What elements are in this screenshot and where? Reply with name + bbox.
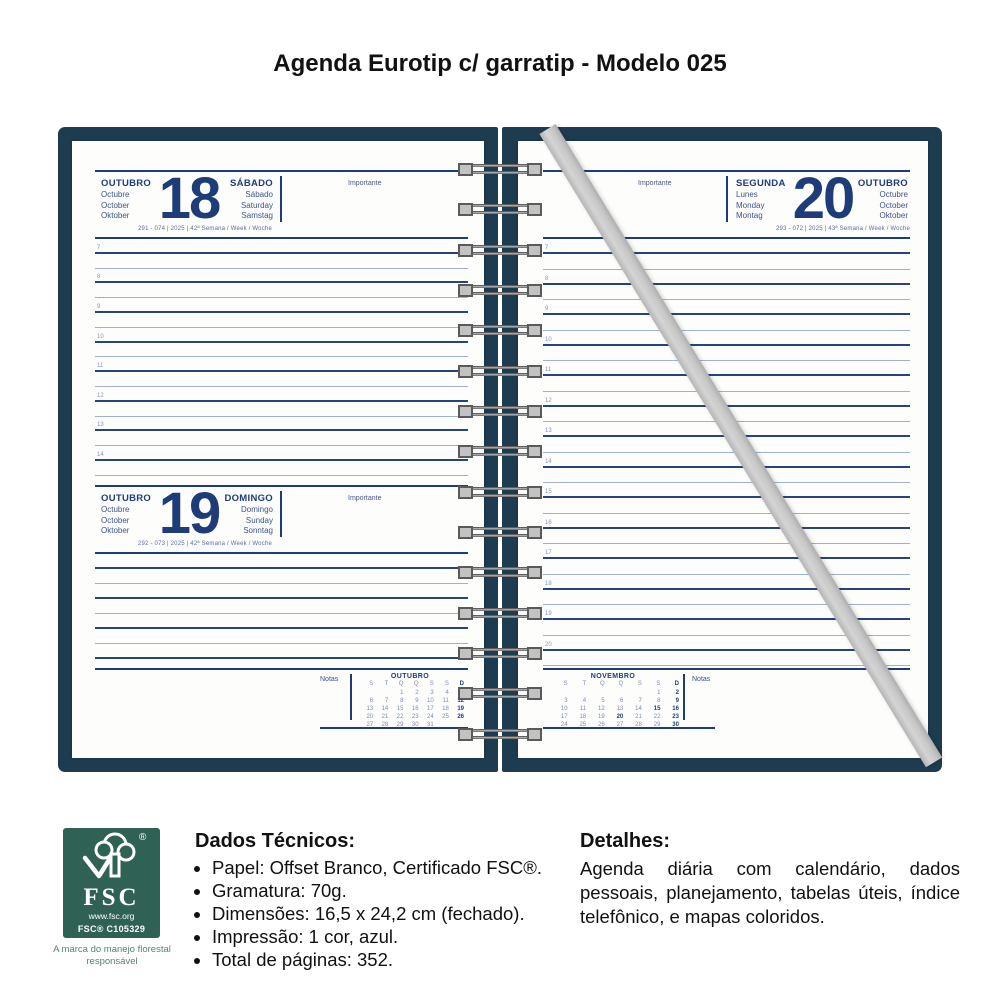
technical-data-section: Dados Técnicos: Papel: Offset Branco, Ce… (195, 830, 575, 972)
fsc-brand: FSC (63, 885, 160, 910)
notes-strip-right: NOVEMBRO STQQSSD 12345678910111213141516… (543, 668, 910, 730)
hour-lines: 7891011121314151617181920 (543, 239, 910, 666)
hour-label: 13 (97, 422, 104, 428)
day-block-18: OUTUBRO Octubre October Oktober 18 SÁBAD… (95, 170, 468, 476)
calendar-day: 15 (388, 706, 403, 714)
calendar-day (373, 690, 388, 698)
calendar-dow: D (660, 681, 679, 689)
notas-label: Notas (685, 670, 715, 727)
fsc-tree-icon: ® (63, 828, 160, 882)
hour-label: 14 (545, 459, 552, 465)
calendar-day: 22 (642, 714, 661, 722)
binding-ring-icon (458, 284, 542, 297)
calendar-dow: Q (388, 681, 403, 689)
hour-label: 19 (545, 611, 552, 617)
calendar-dow-row: STQQSSD (543, 680, 683, 689)
ruled-line (95, 629, 468, 644)
calendar-day: 27 (605, 722, 624, 730)
details-section: Detalhes: Agenda diária com calendário, … (580, 830, 960, 929)
ruled-line (95, 402, 468, 417)
calendar-day: 7 (623, 698, 642, 706)
binding-ring-icon (458, 405, 542, 418)
ruled-line (95, 554, 468, 569)
binding-ring-icon (458, 526, 542, 539)
binding-ring-icon (458, 203, 542, 216)
calendar-day: 25 (568, 722, 587, 730)
calendar-dow-row: STQQSSD (352, 680, 468, 689)
importante-label: Importante (638, 180, 671, 187)
ruled-line: 10 (543, 331, 910, 346)
header-divider (280, 491, 282, 537)
ruled-line (543, 285, 910, 300)
ruled-line: 9 (95, 298, 468, 313)
calendar-day: 26 (586, 722, 605, 730)
calendar-day: 2 (660, 690, 679, 698)
ruled-line: 11 (543, 361, 910, 376)
hour-label: 12 (545, 398, 552, 404)
header-divider (280, 176, 282, 222)
weekday-column: DOMINGO Domingo Sunday Sonntag (213, 493, 273, 537)
binding-ring-icon (458, 163, 542, 176)
ruled-line (95, 343, 468, 358)
ruled-line (95, 461, 468, 476)
hour-label: 8 (97, 274, 100, 280)
calendar-day: 2 (403, 690, 418, 698)
calendar-day: 23 (403, 714, 418, 722)
month-column: OUTUBRO Octubre October Oktober (858, 178, 908, 222)
calendar-day: 18 (434, 706, 449, 714)
hour-label: 16 (545, 520, 552, 526)
day-block-19: OUTUBRO Octubre October Oktober 19 DOMIN… (95, 485, 468, 659)
calendar-day: 4 (434, 690, 449, 698)
calendar-day: 18 (568, 714, 587, 722)
day-number: 20 (783, 172, 863, 225)
calendar-day: 29 (388, 722, 403, 730)
hour-label: 12 (97, 393, 104, 399)
calendar-dow: S (549, 681, 568, 689)
binding-ring-icon (458, 486, 542, 499)
ruled-line: 9 (543, 300, 910, 315)
calendar-day (568, 690, 587, 698)
calendar-day: 25 (434, 714, 449, 722)
binding-ring-icon (458, 324, 542, 337)
calendar-day (358, 690, 373, 698)
hour-label: 9 (545, 306, 548, 312)
binding-ring-icon (458, 445, 542, 458)
calendar-day (605, 690, 624, 698)
ruled-line: 13 (95, 417, 468, 432)
hour-label: 11 (97, 363, 103, 369)
ruled-line (95, 644, 468, 659)
ruled-line (95, 431, 468, 446)
calendar-day: 1 (388, 690, 403, 698)
calendar-day: 21 (373, 714, 388, 722)
calendar-day (434, 722, 449, 730)
binding-ring-icon (458, 365, 542, 378)
ruled-line: 17 (543, 544, 910, 559)
fsc-cert-code: FSC® C105329 (63, 924, 160, 934)
hour-label: 18 (545, 581, 552, 587)
calendar-day: 17 (419, 706, 434, 714)
hour-label: 7 (545, 245, 548, 251)
hour-label: 9 (97, 304, 100, 310)
binding-ring-icon (458, 728, 542, 741)
ruled-line: 16 (543, 514, 910, 529)
calendar-day: 3 (419, 690, 434, 698)
calendar-dow: S (642, 681, 661, 689)
note-lines (95, 554, 468, 659)
calendar-dow: S (419, 681, 434, 689)
fsc-url: www.fsc.org (63, 911, 160, 921)
hour-label: 10 (545, 337, 552, 343)
ruled-line (95, 283, 468, 298)
hour-label: 10 (97, 334, 104, 340)
calendar-dow: S (434, 681, 449, 689)
calendar-day: 9 (660, 698, 679, 706)
calendar-day: 15 (642, 706, 661, 714)
registered-mark: ® (139, 832, 147, 843)
hour-label: 13 (545, 428, 552, 434)
calendar-day: 30 (660, 722, 679, 730)
calendar-dow: Q (586, 681, 605, 689)
ruled-line (95, 254, 468, 269)
calendar-day (586, 690, 605, 698)
calendar-day: 10 (549, 706, 568, 714)
calendar-day: 10 (419, 698, 434, 706)
weekday-column: SÁBADO Sábado Saturday Samstag (213, 178, 273, 222)
calendar-day: 13 (605, 706, 624, 714)
calendar-dow: T (568, 681, 587, 689)
binding-ring-icon (458, 687, 542, 700)
calendar-day: 24 (549, 722, 568, 730)
ruled-line: 8 (543, 270, 910, 285)
calendar-dow: S (358, 681, 373, 689)
ruled-line (543, 315, 910, 330)
weekday-column: SEGUNDA Lunes Monday Montag (736, 178, 786, 222)
calendar-day: 20 (358, 714, 373, 722)
hour-lines: 7891011121314 (95, 239, 468, 476)
technical-data-item: Total de páginas: 352. (212, 949, 575, 972)
calendar-day: 17 (549, 714, 568, 722)
calendar-day (549, 690, 568, 698)
calendar-day (623, 690, 642, 698)
month-column: OUTUBRO Octubre October Oktober (101, 178, 151, 222)
ruled-line (543, 590, 910, 605)
calendar-day: 7 (373, 698, 388, 706)
calendar-day: 3 (549, 698, 568, 706)
details-heading: Detalhes: (580, 830, 960, 853)
technical-data-heading: Dados Técnicos: (195, 830, 575, 853)
hour-label: 15 (545, 489, 552, 495)
ruled-line: 15 (543, 483, 910, 498)
notes-strip-left: Notas OUTUBRO STQQSSD 123456789101112131… (95, 668, 468, 730)
calendar-dow: T (373, 681, 388, 689)
ruled-line (95, 372, 468, 387)
agenda-page-left: OUTUBRO Octubre October Oktober 18 SÁBAD… (72, 141, 484, 758)
agenda-mockup: OUTUBRO Octubre October Oktober 18 SÁBAD… (58, 127, 942, 772)
binding-ring-icon (458, 566, 542, 579)
hour-label: 17 (545, 550, 552, 556)
month-column: OUTUBRO Octubre October Oktober (101, 493, 151, 537)
calendar-day: 6 (358, 698, 373, 706)
mini-calendar-october: OUTUBRO STQQSSD 123456789101112131415161… (352, 670, 468, 727)
calendar-day: 1 (642, 690, 661, 698)
ruled-line (95, 584, 468, 599)
notas-label: Notas (320, 670, 350, 727)
fsc-caption: A marca do manejo florestal responsável (50, 944, 174, 968)
product-image: Agenda Eurotip c/ garratip - Modelo 025 … (0, 0, 1000, 1000)
calendar-day: 23 (660, 714, 679, 722)
calendar-day: 20 (605, 714, 624, 722)
ruled-line: 14 (95, 446, 468, 461)
wire-binding (458, 163, 542, 741)
ruled-line: 8 (95, 269, 468, 284)
calendar-day: 16 (403, 706, 418, 714)
ruled-line: 7 (543, 239, 910, 254)
ruled-line (543, 651, 910, 666)
ruled-line (95, 313, 468, 328)
calendar-day: 31 (419, 722, 434, 730)
ruled-line (543, 254, 910, 269)
calendar-day: 13 (358, 706, 373, 714)
calendar-day: 14 (373, 706, 388, 714)
calendar-day: 24 (419, 714, 434, 722)
calendar-day: 11 (434, 698, 449, 706)
calendar-day: 14 (623, 706, 642, 714)
technical-data-item: Gramatura: 70g. (212, 880, 575, 903)
ruled-line (543, 468, 910, 483)
hour-label: 8 (545, 276, 548, 282)
calendar-dow: Q (605, 681, 624, 689)
calendar-days: 1234567891011121314151617181920212223242… (543, 689, 683, 730)
calendar-day: 27 (358, 722, 373, 730)
ruled-line (95, 614, 468, 629)
hour-label: 14 (97, 452, 104, 458)
header-divider (726, 176, 728, 222)
hour-label: 11 (545, 367, 551, 373)
page-title: Agenda Eurotip c/ garratip - Modelo 025 (0, 50, 1000, 78)
ruled-line (543, 559, 910, 574)
calendar-days: 1234567891011121314151617181920212223242… (352, 689, 468, 730)
ruled-line: 12 (95, 387, 468, 402)
hour-label: 20 (545, 642, 552, 648)
importante-label: Importante (348, 495, 381, 502)
ruled-line: 11 (95, 357, 468, 372)
ruled-line: 14 (543, 453, 910, 468)
calendar-day: 6 (605, 698, 624, 706)
binding-ring-icon (458, 607, 542, 620)
calendar-day: 30 (403, 722, 418, 730)
fsc-logo: ® FSC www.fsc.org FSC® C105329 (63, 828, 160, 938)
ruled-line: 10 (95, 328, 468, 343)
ruled-line (95, 599, 468, 614)
technical-data-list: Papel: Offset Branco, Certificado FSC®.G… (195, 857, 575, 972)
calendar-day: 28 (373, 722, 388, 730)
calendar-day: 12 (586, 706, 605, 714)
hour-label: 7 (97, 245, 100, 251)
technical-data-item: Dimensões: 16,5 x 24,2 cm (fechado). (212, 903, 575, 926)
calendar-day: 8 (642, 698, 661, 706)
ruled-line (543, 498, 910, 513)
calendar-day: 4 (568, 698, 587, 706)
technical-data-item: Impressão: 1 cor, azul. (212, 926, 575, 949)
ruled-line: 18 (543, 575, 910, 590)
calendar-day: 11 (568, 706, 587, 714)
calendar-day: 8 (388, 698, 403, 706)
binding-ring-icon (458, 647, 542, 660)
calendar-dow: Q (403, 681, 418, 689)
calendar-day: 28 (623, 722, 642, 730)
ruled-line (543, 376, 910, 391)
ruled-line: 7 (95, 239, 468, 254)
calendar-day: 29 (642, 722, 661, 730)
details-text: Agenda diária com calendário, dados pess… (580, 857, 960, 929)
binding-ring-icon (458, 244, 542, 257)
ruled-line (95, 569, 468, 584)
technical-data-item: Papel: Offset Branco, Certificado FSC®. (212, 857, 575, 880)
calendar-day: 5 (586, 698, 605, 706)
calendar-dow: S (623, 681, 642, 689)
calendar-day: 16 (660, 706, 679, 714)
mini-calendar-november: NOVEMBRO STQQSSD 12345678910111213141516… (543, 670, 683, 727)
ruled-line (543, 529, 910, 544)
calendar-day: 21 (623, 714, 642, 722)
importante-label: Importante (348, 180, 381, 187)
calendar-day: 19 (586, 714, 605, 722)
calendar-day: 22 (388, 714, 403, 722)
ruled-line (543, 346, 910, 361)
calendar-day: 9 (403, 698, 418, 706)
